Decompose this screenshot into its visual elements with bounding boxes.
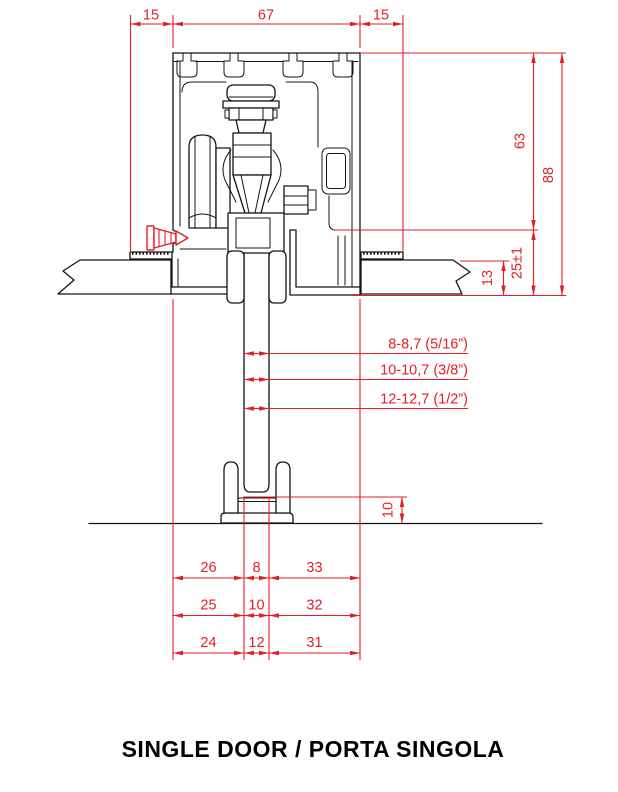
dim-top-center: 67 <box>258 8 274 24</box>
bottom-dimension-row-3: 24 12 31 <box>173 635 360 653</box>
bottom-dimension-row-2: 25 10 32 <box>173 598 360 616</box>
dim-row2-mid: 10 <box>248 598 264 614</box>
single-door-section-drawing: 15 67 15 63 88 25±1 13 8-8,7 (5/16”) 10-… <box>0 0 618 792</box>
dim-row3-mid: 12 <box>248 635 264 651</box>
adjustment-collar <box>229 108 273 120</box>
dim-total-height: 88 <box>541 167 557 183</box>
glass-option-10mm: 10-10,7 (3/8”) <box>380 363 468 379</box>
dim-top-right: 15 <box>373 8 389 24</box>
clamp-jaw-left <box>227 251 244 303</box>
dim-guide-height: 10 <box>381 502 397 518</box>
dim-top-left: 15 <box>143 8 159 24</box>
fixing-screw <box>147 226 188 250</box>
dim-row2-right: 32 <box>306 598 322 614</box>
dim-glass-to-ceiling: 25±1 <box>510 247 526 279</box>
dim-track-to-glass: 63 <box>513 133 529 149</box>
dimension-lines: 15 67 15 63 88 25±1 13 8-8,7 (5/16”) 10-… <box>131 8 567 661</box>
clamp-jaw-right <box>269 251 286 303</box>
carriage-body <box>233 133 271 175</box>
glass-thickness-dimensions: 8-8,7 (5/16”) 10-10,7 (3/8”) 12-12,7 (1/… <box>244 337 468 409</box>
bottom-dimension-row-1: 26 8 33 <box>173 560 360 578</box>
ceiling-panel-left <box>58 260 172 294</box>
roller-carriage <box>189 85 316 253</box>
technical-drawing-page: 15 67 15 63 88 25±1 13 8-8,7 (5/16”) 10-… <box>0 0 618 792</box>
right-bottom-flange <box>290 230 360 295</box>
dim-row2-left: 25 <box>200 598 216 614</box>
dim-ceiling-thickness: 13 <box>480 270 496 286</box>
dim-row3-left: 24 <box>200 635 216 651</box>
t-slot-channels <box>177 53 353 77</box>
clamp-bolt <box>284 186 308 214</box>
suspension-cap <box>227 85 275 101</box>
glass-panel <box>244 253 269 492</box>
glass-option-8mm: 8-8,7 (5/16”) <box>388 337 468 353</box>
dim-row1-right: 33 <box>306 560 322 576</box>
dim-row3-right: 31 <box>306 635 322 651</box>
dim-row1-mid: 8 <box>252 560 260 576</box>
drawing-title: SINGLE DOOR / PORTA SINGOLA <box>122 736 505 762</box>
ceiling-panel-right <box>361 260 470 294</box>
glass-option-12mm: 12-12,7 (1/2”) <box>380 392 468 408</box>
dim-row1-left: 26 <box>200 560 216 576</box>
